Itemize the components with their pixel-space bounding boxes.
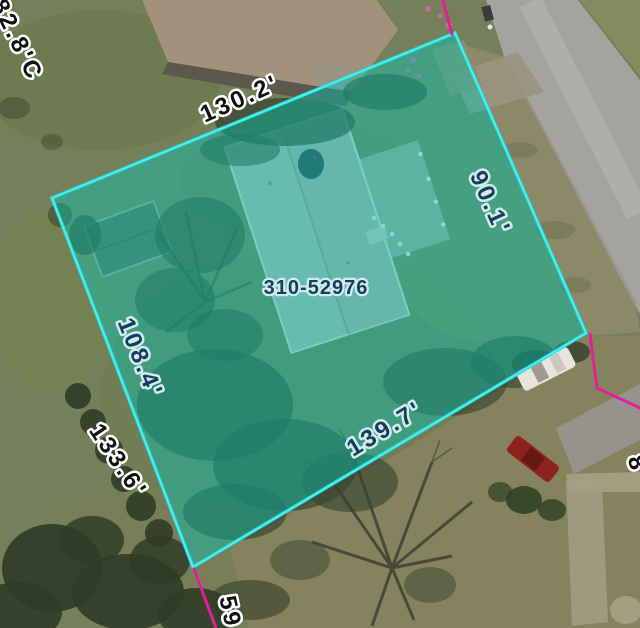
- parcel-id-label: 310-52976: [264, 277, 369, 299]
- map-canvas[interactable]: 310-52976 90.1' 108.4' 139.7' 130.2' 82.…: [0, 0, 640, 628]
